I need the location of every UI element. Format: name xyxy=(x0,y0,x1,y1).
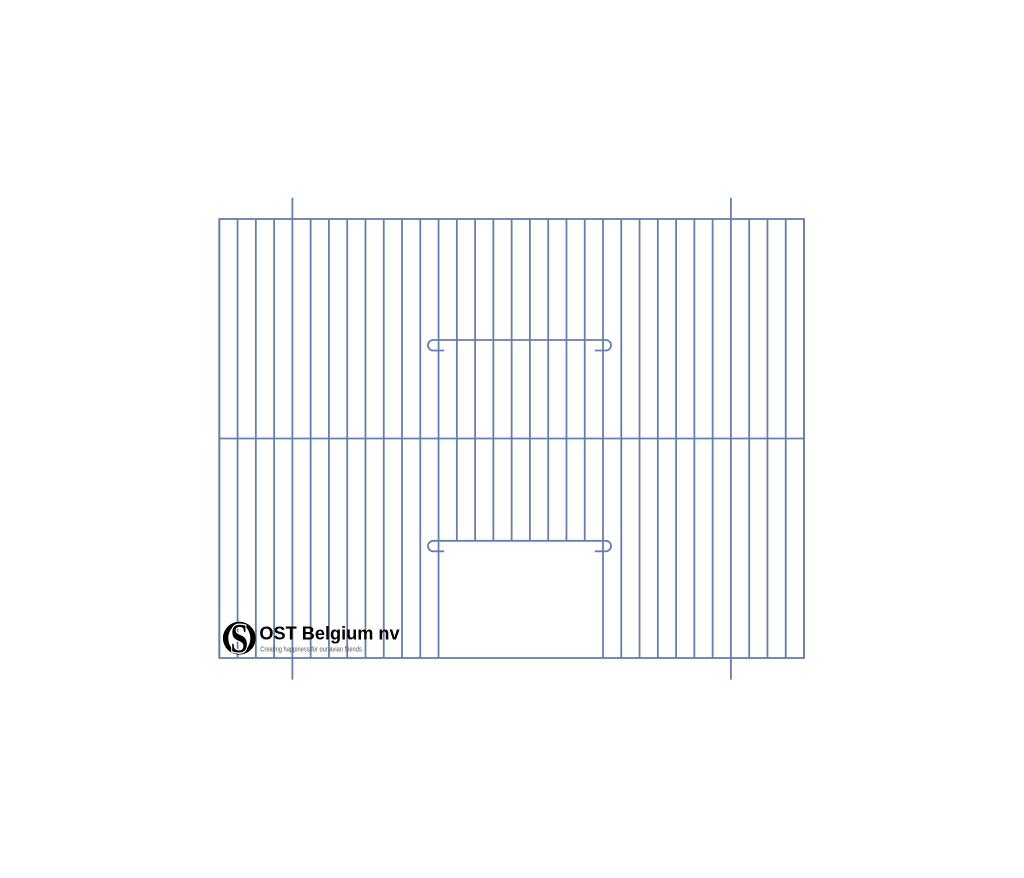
svg-text:S: S xyxy=(230,615,248,661)
svg-text:Creating happiness for our avi: Creating happiness for our avian friends xyxy=(260,644,362,653)
svg-text:OST Belgium nv: OST Belgium nv xyxy=(259,622,400,643)
